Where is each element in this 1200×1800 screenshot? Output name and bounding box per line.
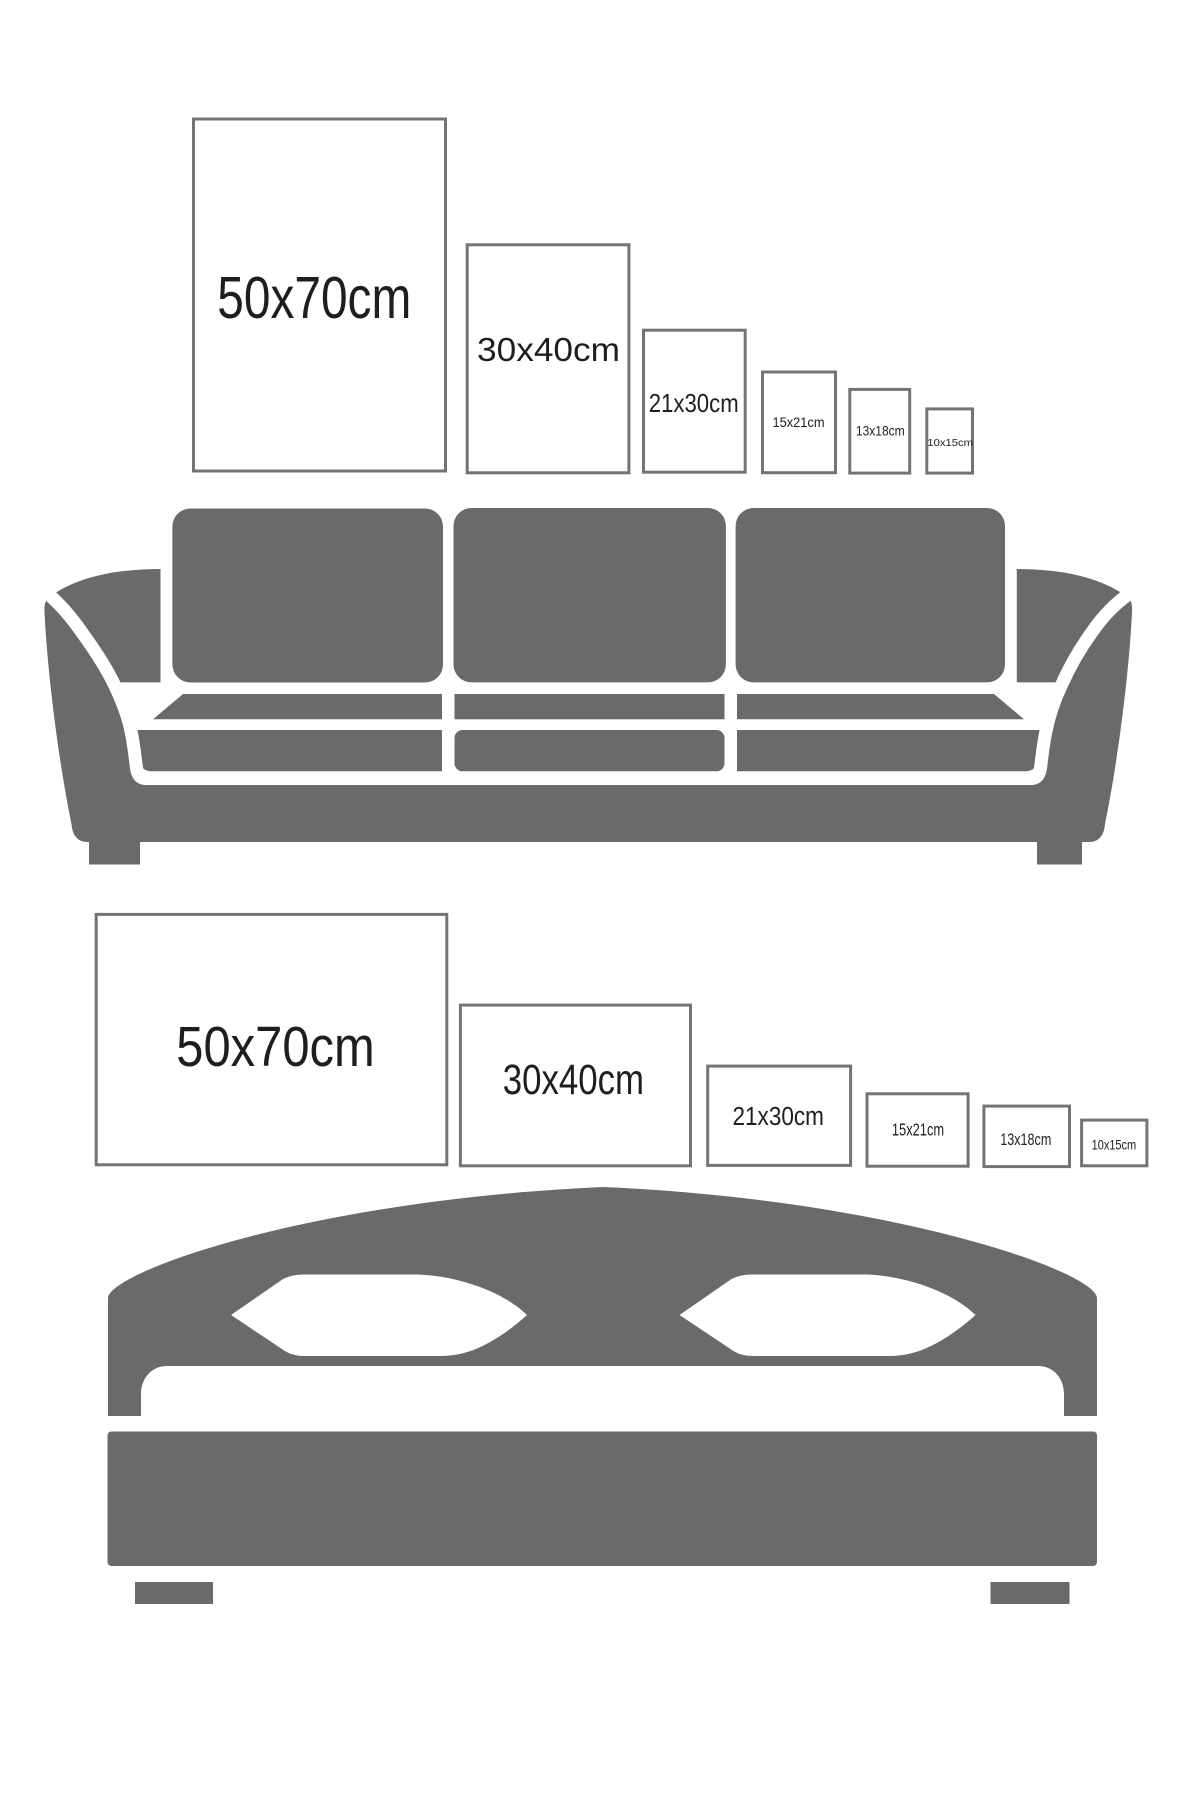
svg-text:30x40cm: 30x40cm: [503, 1057, 644, 1104]
svg-text:15x21cm: 15x21cm: [892, 1120, 944, 1140]
svg-text:50x70cm: 50x70cm: [217, 265, 411, 331]
svg-text:10x15cm: 10x15cm: [927, 438, 973, 449]
svg-text:21x30cm: 21x30cm: [649, 390, 739, 418]
svg-text:30x40cm: 30x40cm: [477, 332, 620, 369]
svg-text:21x30cm: 21x30cm: [733, 1101, 824, 1131]
svg-text:50x70cm: 50x70cm: [176, 1015, 374, 1078]
svg-text:15x21cm: 15x21cm: [773, 415, 825, 430]
svg-text:13x18cm: 13x18cm: [1000, 1131, 1051, 1149]
svg-text:10x15cm: 10x15cm: [1092, 1138, 1137, 1153]
svg-text:13x18cm: 13x18cm: [856, 424, 905, 439]
